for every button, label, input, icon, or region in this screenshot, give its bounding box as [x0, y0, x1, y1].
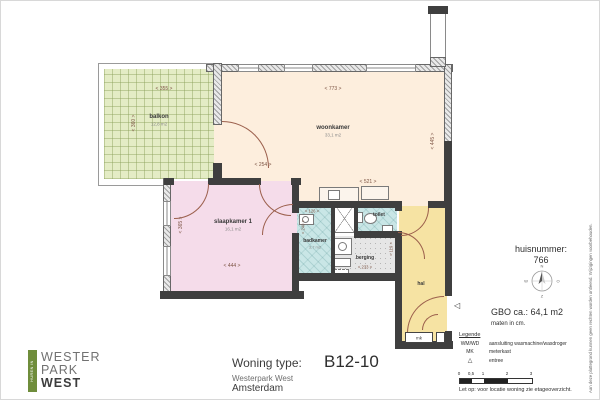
logo-vertical-text: HUREN IN [28, 350, 37, 392]
wall-balkon-woonkamer [213, 63, 222, 125]
room-area-balkon: 12,8 m2 [151, 122, 167, 127]
maten-text: maten in cm. [491, 321, 525, 327]
dim-woonkamer-width: < 773 > [325, 86, 342, 92]
dim-slaapkamer-width: < 444 > [224, 263, 241, 269]
room-area-slaapkamer: 16,1 m2 [225, 227, 241, 232]
compass-north: N [541, 264, 544, 269]
woning-type-label: Woning type: [232, 356, 302, 370]
floorplan-page: mk ◁ balkon 12,8 m2 woonkamer 33,1 m2 sl… [0, 0, 600, 400]
meterkast-label: mk [416, 336, 422, 341]
legend-title: Legende [459, 332, 480, 338]
dim-badkamer-width: < 126 > [305, 209, 319, 214]
dim-keuken-width: < 521 > [360, 179, 377, 185]
room-label-badkamer: badkamer [303, 238, 327, 244]
dim-balkon-depth: < 360 > [131, 115, 137, 132]
dim-balkon-door: < 254 > [255, 162, 272, 168]
room-label-hal: hal [417, 281, 424, 287]
kitchen-counter [361, 186, 389, 200]
gbo-text: GBO ca.: 64,1 m2 [491, 307, 563, 317]
city-name: Amsterdam [232, 383, 283, 394]
project-name: Westerpark West [232, 374, 293, 383]
legend-desc-entree: entree [489, 358, 503, 364]
dim-berging-width: < 233 > [358, 265, 372, 270]
room-label-woonkamer: woonkamer [316, 125, 349, 131]
wall-slaapkamer-left [163, 178, 171, 298]
room-label-toilet: toilet [373, 212, 385, 218]
logo-line3: WEST [41, 376, 81, 390]
huisnummer-label: huisnummer: [515, 244, 567, 254]
wall-toilet-bottom [354, 231, 401, 238]
wall-keuken-bad [292, 201, 401, 208]
wall-slaapkamer-top [208, 178, 261, 185]
wall-hal-left-low [395, 279, 402, 349]
building-edge-line [445, 14, 446, 60]
logo-line2: PARK [41, 363, 78, 377]
dim-woonkamer-depth: < 445 > [430, 133, 436, 150]
compass-south: Z [541, 294, 543, 299]
window [163, 201, 171, 226]
dim-balkon-width: < 355 > [156, 86, 173, 92]
wall-bad-berging [331, 203, 335, 275]
room-label-berging: berging [356, 255, 374, 261]
wall-shower-toilet [354, 203, 358, 234]
wall-hal-right [445, 331, 452, 349]
scale-bar [459, 378, 533, 384]
logo-line1: WESTER [41, 350, 100, 364]
legend-symbol-mk: MK [455, 349, 485, 355]
window [163, 246, 171, 276]
wall-right-lower [444, 141, 452, 208]
woning-type-value: B12-10 [324, 352, 379, 372]
wall-slaapkamer-bottom [160, 291, 304, 299]
scale-tick: 1 [482, 371, 485, 376]
scale-tick: 2 [506, 371, 509, 376]
scale-tick: 0,5 [468, 371, 474, 376]
legend-desc-mk: meterkast [489, 349, 511, 355]
wall-slaapkamer-right [292, 184, 299, 213]
disclaimer-text: Aan deze plattegrond kunnen geen rechten… [588, 208, 593, 393]
compass-icon [530, 269, 554, 293]
room-area-badkamer: 3,7 m2 [309, 245, 321, 250]
shower [334, 204, 355, 233]
room-area-woonkamer: 33,1 m2 [325, 133, 341, 138]
wall-slaapkamer-right [292, 233, 299, 293]
compass-east: O [556, 279, 559, 284]
legend-desc-wmwd: aansluiting wasmachine/wasdroger [489, 341, 567, 347]
scale-tick: 0 [458, 371, 461, 376]
dim-badkamer-depth: < 240 > [301, 220, 306, 234]
wall-right-upper [444, 64, 452, 144]
berging-cabinet [334, 258, 351, 267]
entree-marker-icon: ◁ [454, 302, 460, 310]
building-edge-cap [428, 6, 448, 14]
room-label-slaapkamer: slaapkamer 1 [214, 219, 252, 225]
dim-slaapkamer-depth: < 365 > [178, 217, 184, 234]
wall-berging-bottom [292, 273, 401, 281]
building-edge-hatch [430, 57, 446, 67]
wall-slaapkamer-top [164, 178, 174, 185]
window [238, 64, 259, 72]
meterkast-side-box [436, 332, 445, 343]
legend-symbol-wmwd: WM/WD [455, 341, 485, 347]
wall-hal-right [445, 201, 452, 296]
window [366, 64, 416, 72]
scale-tick: 3 [530, 371, 533, 376]
washer-door [338, 242, 347, 251]
legend-note: Let op: voor locatie woning zie etageove… [459, 387, 572, 393]
legend-symbol-entree: △ [455, 357, 485, 364]
room-label-balkon: balkon [149, 114, 168, 120]
window [284, 64, 313, 72]
compass-west: W [524, 279, 528, 284]
kitchen-sink [328, 190, 340, 200]
dim-berging-depth: < 119 > [389, 242, 394, 256]
building-edge-line [430, 14, 431, 60]
